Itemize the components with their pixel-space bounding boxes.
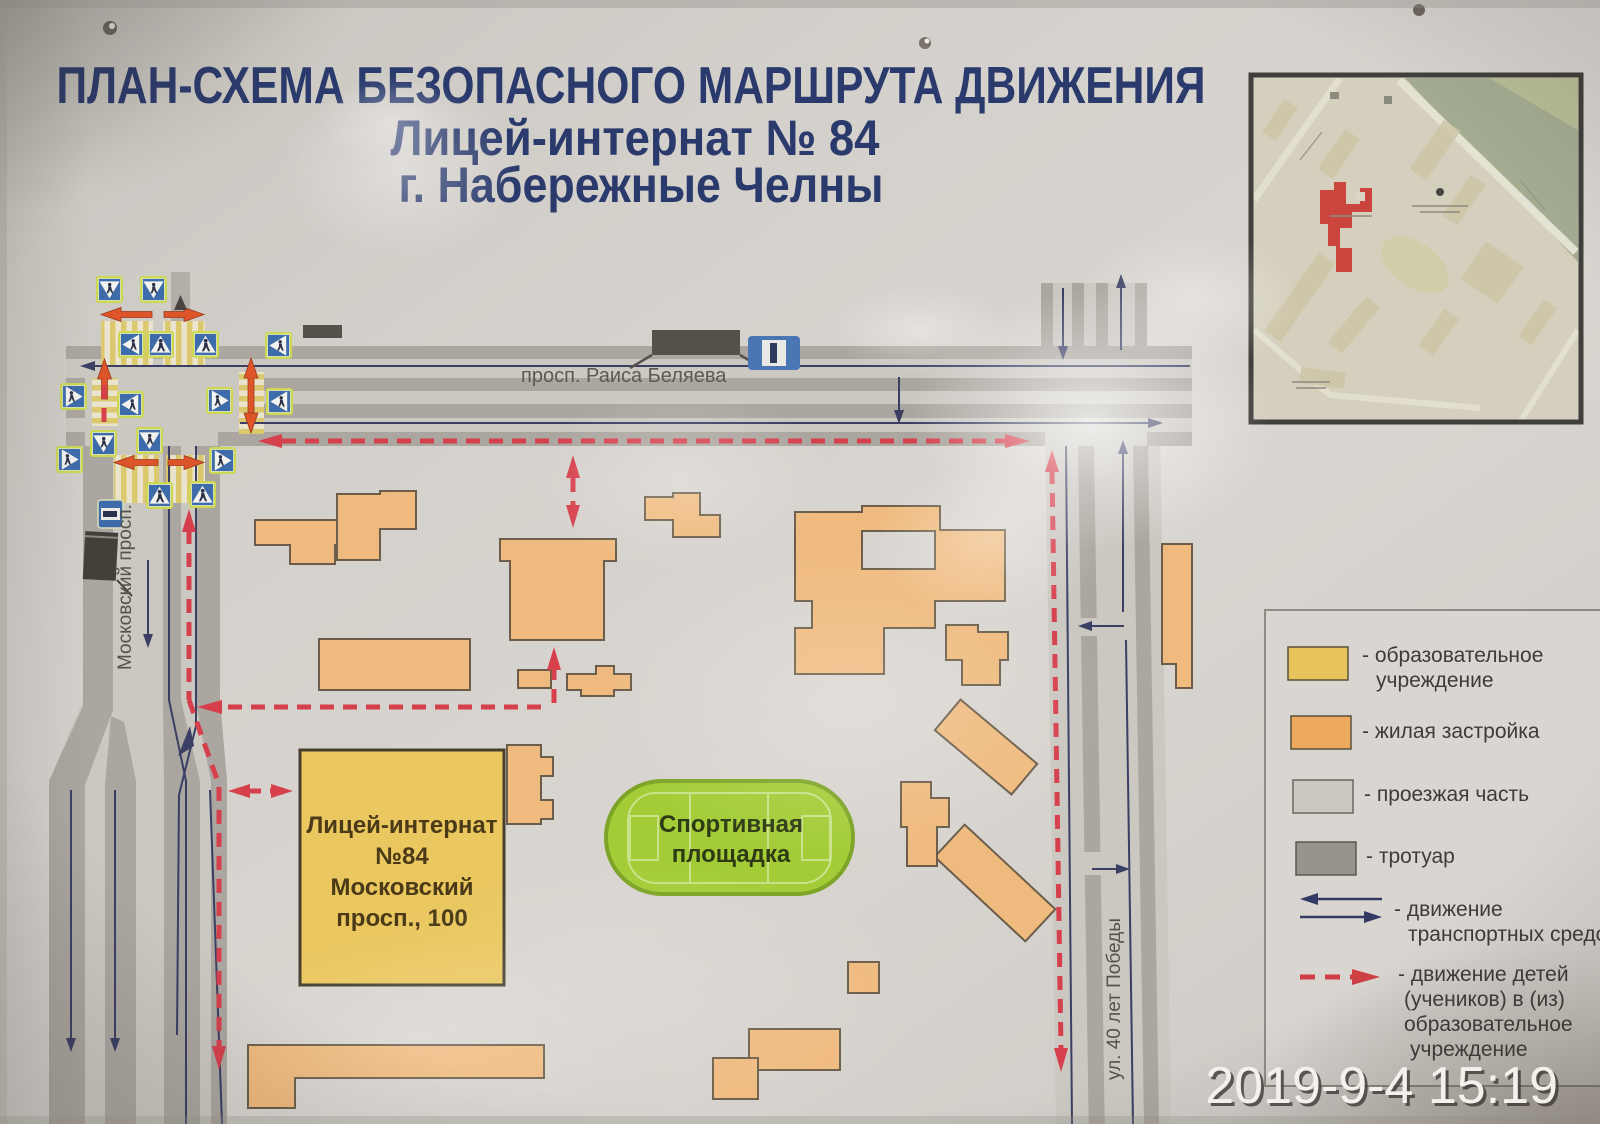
svg-text:2019-9-4 15:19: 2019-9-4 15:19 xyxy=(1205,1057,1558,1115)
